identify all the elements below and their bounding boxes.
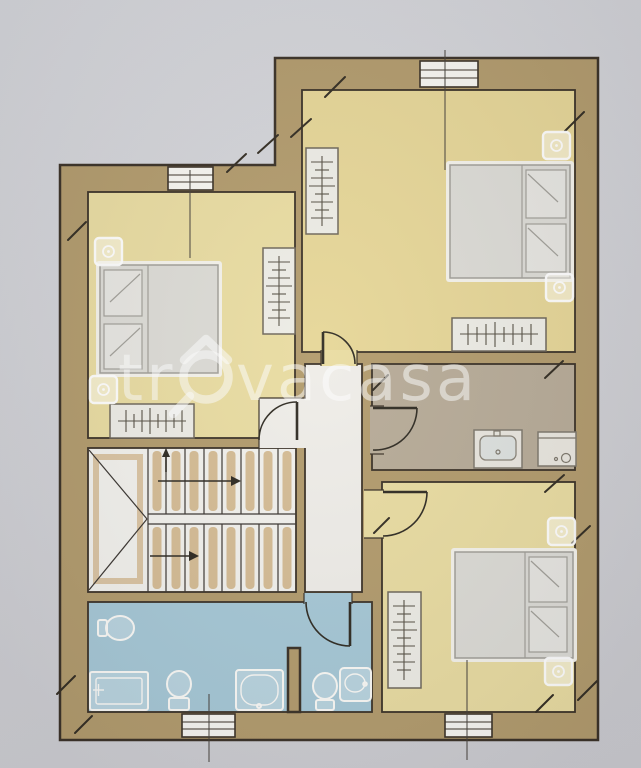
- toilet-icon: [98, 616, 134, 640]
- wardrobe-icon: [306, 148, 338, 234]
- light-symbol-icon: [95, 238, 122, 265]
- light-symbol-icon: [548, 518, 575, 545]
- wc-divider-wall: [288, 648, 300, 712]
- light-symbol-icon: [546, 274, 573, 301]
- wardrobe-icon: [263, 248, 295, 334]
- wardrobe-icon: [388, 592, 421, 688]
- trovacasa-watermark: tr vacasa: [118, 339, 478, 416]
- light-symbol-icon: [545, 658, 572, 685]
- floor-plan-photo: tr vacasa: [0, 0, 641, 768]
- watermark-text-prefix: tr: [118, 342, 175, 416]
- shower-icon: [90, 672, 148, 710]
- floor-plan-drawing: tr vacasa: [0, 0, 641, 768]
- toilet-icon: [313, 673, 337, 710]
- washing-machine-icon: [538, 432, 576, 466]
- staircase: [88, 448, 296, 592]
- light-symbol-icon: [543, 132, 570, 159]
- watermark-text-suffix: vacasa: [236, 342, 478, 416]
- vanity-sink-icon: [474, 430, 522, 468]
- bed-icon: [446, 161, 574, 282]
- bed-icon: [451, 548, 577, 662]
- light-symbol-icon: [90, 376, 117, 403]
- sink-icon: [340, 668, 371, 701]
- bidet-icon: [167, 671, 191, 710]
- bathtub-icon: [236, 670, 283, 710]
